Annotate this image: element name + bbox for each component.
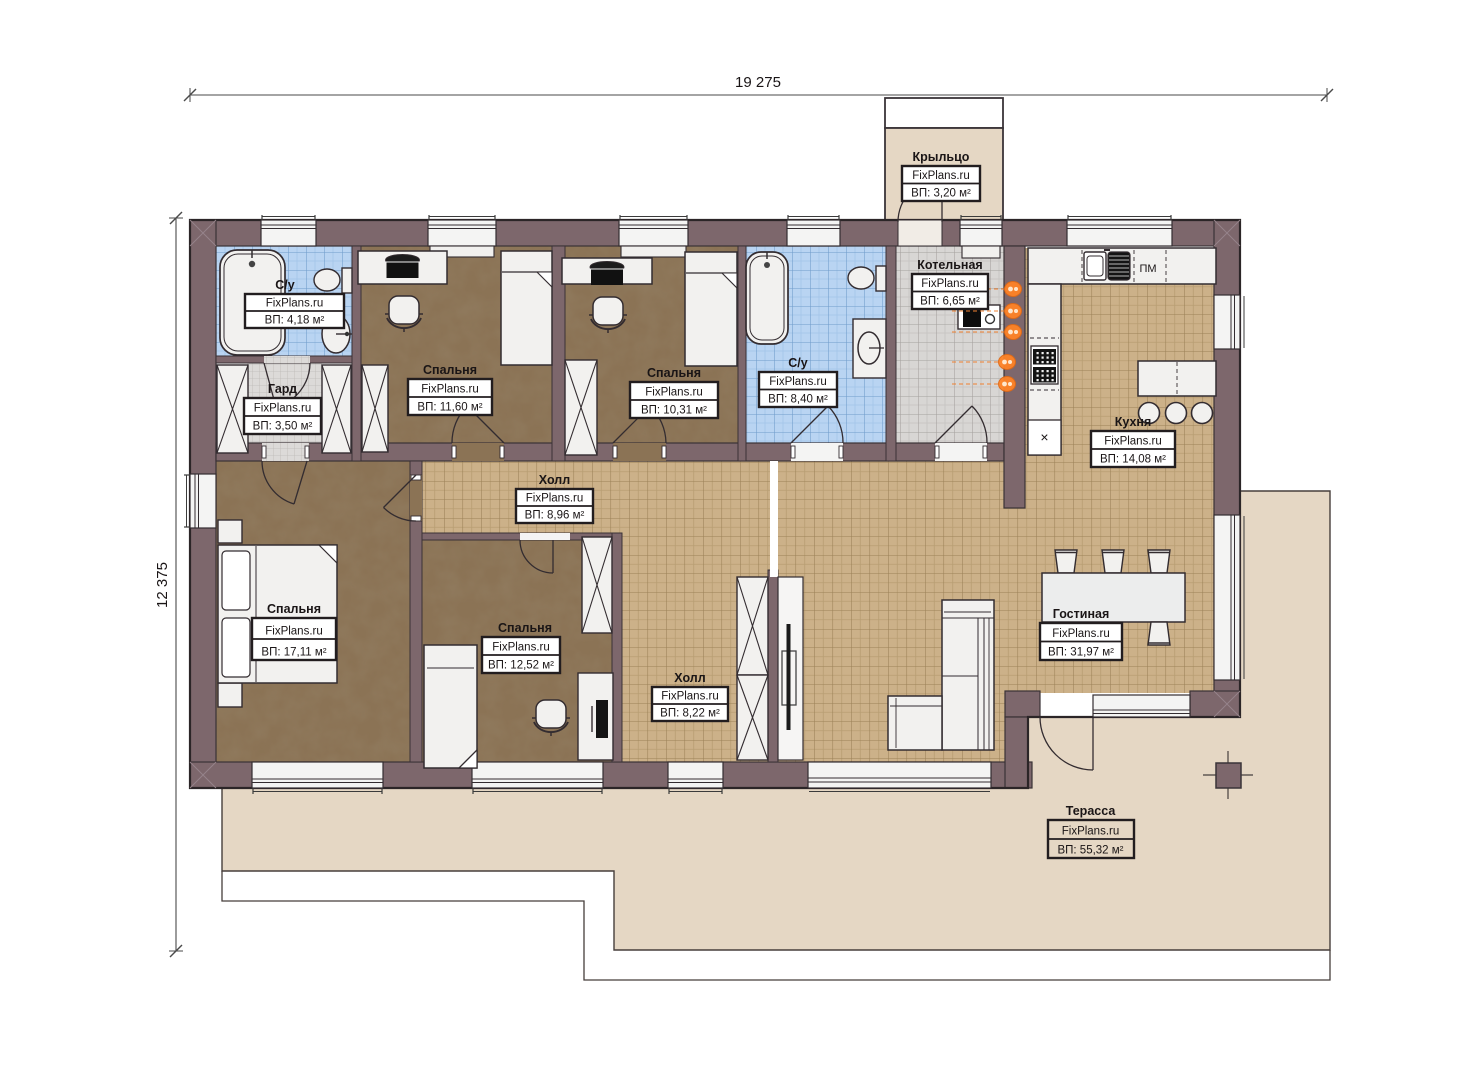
svg-text:FixPlans.ru: FixPlans.ru <box>526 493 584 505</box>
svg-text:Гард: Гард <box>268 382 297 396</box>
svg-text:ВП: 3,50 м²: ВП: 3,50 м² <box>253 421 313 433</box>
svg-text:FixPlans.ru: FixPlans.ru <box>265 626 323 638</box>
svg-text:ВП: 3,20 м²: ВП: 3,20 м² <box>911 188 971 200</box>
svg-text:Котельная: Котельная <box>917 258 982 272</box>
svg-text:Холл: Холл <box>539 473 570 487</box>
svg-text:FixPlans.ru: FixPlans.ru <box>254 403 312 415</box>
svg-text:Спальня: Спальня <box>498 621 552 635</box>
svg-text:19 275: 19 275 <box>735 74 781 91</box>
svg-text:Холл: Холл <box>674 671 705 685</box>
svg-text:ВП: 14,08 м²: ВП: 14,08 м² <box>1100 454 1166 466</box>
svg-text:FixPlans.ru: FixPlans.ru <box>1052 628 1110 640</box>
svg-text:12 375: 12 375 <box>154 562 171 608</box>
svg-text:ВП: 8,96 м²: ВП: 8,96 м² <box>525 510 585 522</box>
svg-text:FixPlans.ru: FixPlans.ru <box>769 376 827 388</box>
svg-text:Кухня: Кухня <box>1115 415 1152 429</box>
svg-text:ВП: 55,32 м²: ВП: 55,32 м² <box>1057 845 1123 857</box>
svg-text:ВП: 11,60 м²: ВП: 11,60 м² <box>417 402 482 414</box>
svg-text:ПМ: ПМ <box>1139 263 1156 275</box>
svg-text:FixPlans.ru: FixPlans.ru <box>266 298 324 310</box>
svg-text:FixPlans.ru: FixPlans.ru <box>912 170 970 182</box>
svg-text:Спальня: Спальня <box>647 366 701 380</box>
svg-text:ВП: 12,52 м²: ВП: 12,52 м² <box>488 660 554 672</box>
svg-text:FixPlans.ru: FixPlans.ru <box>421 384 479 396</box>
svg-text:ВП: 6,65 м²: ВП: 6,65 м² <box>920 296 980 308</box>
svg-text:FixPlans.ru: FixPlans.ru <box>661 691 719 703</box>
svg-text:Крыльцо: Крыльцо <box>913 150 970 164</box>
svg-text:Спальня: Спальня <box>423 363 477 377</box>
svg-text:ВП: 8,40 м²: ВП: 8,40 м² <box>768 394 828 406</box>
svg-text:FixPlans.ru: FixPlans.ru <box>921 278 979 290</box>
svg-text:FixPlans.ru: FixPlans.ru <box>492 642 550 654</box>
svg-text:ВП: 31,97 м²: ВП: 31,97 м² <box>1048 647 1114 659</box>
svg-text:FixPlans.ru: FixPlans.ru <box>645 387 703 399</box>
svg-text:Гостиная: Гостиная <box>1053 607 1110 621</box>
svg-text:Спальня: Спальня <box>267 602 321 616</box>
svg-text:FixPlans.ru: FixPlans.ru <box>1062 826 1120 838</box>
svg-text:Терасса: Терасса <box>1066 804 1117 818</box>
svg-text:С/у: С/у <box>788 356 808 370</box>
svg-text:ВП: 17,11 м²: ВП: 17,11 м² <box>261 647 326 659</box>
svg-text:С/у: С/у <box>275 278 295 292</box>
svg-text:ВП: 8,22 м²: ВП: 8,22 м² <box>660 708 720 720</box>
svg-text:FixPlans.ru: FixPlans.ru <box>1104 436 1162 448</box>
svg-text:×: × <box>1040 429 1048 445</box>
svg-text:ВП: 10,31 м²: ВП: 10,31 м² <box>641 405 707 417</box>
svg-text:ВП: 4,18 м²: ВП: 4,18 м² <box>265 315 325 327</box>
